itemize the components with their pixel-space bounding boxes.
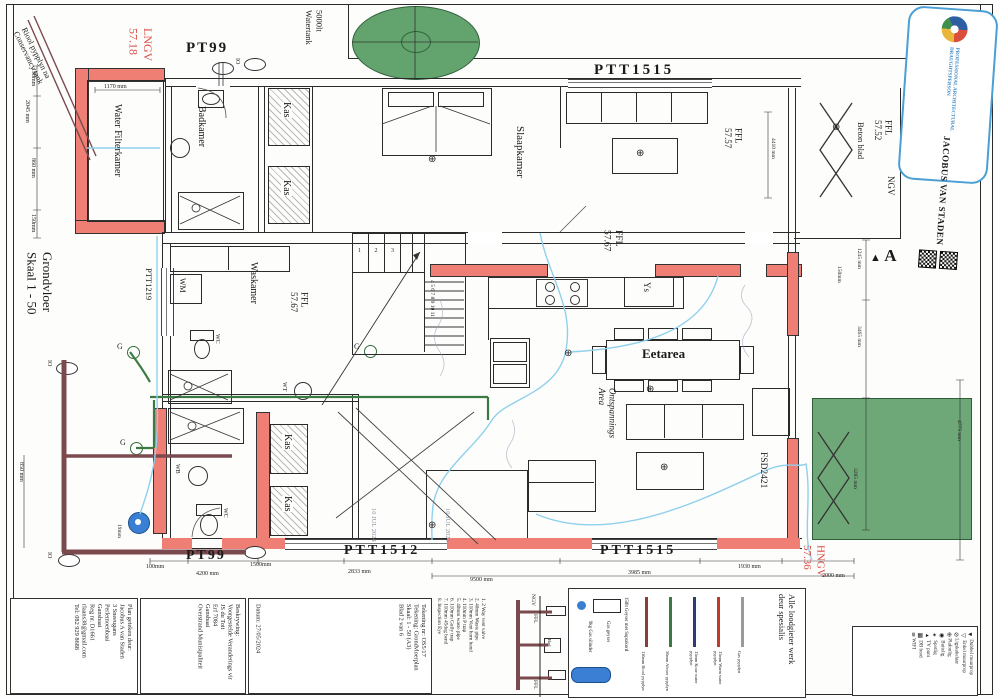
wall-red (153, 408, 167, 534)
elec-item: ◄ Dubbel muurprop (966, 632, 973, 675)
chair (740, 346, 754, 374)
detail-ffl: FFL (532, 614, 538, 623)
wall-red (717, 538, 800, 549)
chair (682, 328, 712, 340)
floor-plan-sheet: Riool pypplyn na Conservancy tank LNGV 5… (0, 0, 1000, 699)
section-letter: A (884, 246, 896, 265)
wall-line (488, 277, 489, 340)
sink-bowl (493, 364, 527, 384)
dim-right-5: 4775 mm (956, 420, 962, 441)
io-label: IO (46, 360, 52, 366)
legend-swatch-gas (741, 597, 744, 647)
io-label: IO (234, 58, 240, 64)
shower (178, 192, 244, 230)
ffl-code: FFL (299, 292, 310, 312)
side-table (636, 452, 704, 490)
fridge-label-ys: Ys (642, 282, 652, 292)
gully-label: G (120, 438, 126, 447)
elec-symbol-icon: ▦ (917, 632, 923, 639)
door-label-pt99-bottom: PT99 (186, 548, 226, 564)
dim-left-3: 860 mm (30, 158, 36, 178)
approval-date-stamp: 10 JUL 2024 (370, 508, 377, 542)
room-label-slaap: Slaapkamer (514, 126, 526, 178)
legend-label-riool: 110mm Riool pypplyn (641, 651, 646, 691)
ffl-code: FFL (611, 230, 622, 251)
waste-trough (294, 382, 312, 400)
detail-item: 3. 110mm Vent horn bend (467, 598, 473, 652)
gully-symbol (130, 442, 143, 455)
lounge-line2: Area (596, 388, 607, 438)
shower (168, 370, 232, 404)
elec-label: DB bord (918, 640, 923, 657)
ffl-code: FFL (883, 120, 894, 140)
tb-desc-line: Beskrywing: (233, 604, 241, 680)
detail-item: 6. 110mm Gully trap (448, 598, 454, 652)
room-label-wfk: Water Filterkamer (112, 104, 123, 177)
dim-bottom-4: 2833 mm (348, 569, 371, 575)
sofa-divider (671, 92, 672, 122)
qr-code-icon (939, 250, 958, 269)
tb-author-line: Reg nr. D1661 (88, 604, 96, 659)
light-symbol: ⊕ (428, 154, 436, 165)
dim-bottom-1: 100mm (146, 564, 164, 570)
tb-author-line: Jacobus A van Staden (118, 604, 126, 659)
legend-swatch-riool (645, 597, 648, 647)
elec-symbol-icon: ◉ (938, 632, 944, 639)
window-pane-line (568, 82, 712, 83)
sink-bowl (493, 342, 527, 362)
tb-author-line: Gansbaai (95, 604, 103, 659)
pillow (388, 92, 434, 107)
fixture-label-wm: WM (178, 278, 187, 293)
level-lngv: LNGV 57.18 (126, 28, 155, 61)
tb-draw-line: Tekening nr: OS5/17 (419, 604, 427, 671)
counter-divider (228, 246, 229, 270)
dim-right-2: 1245 mm (856, 248, 862, 269)
wall-red (655, 264, 741, 277)
burner-icon (570, 295, 580, 305)
detail-bad: Bad (547, 639, 552, 646)
titleblock-drawing: Tekening nr: OS5/17 Tekening: Grondvloer… (248, 598, 432, 694)
sewer-detail: 1. 2 Way vent valve 2. 40mm Waste pipe 3… (432, 592, 566, 698)
detail-item: 1. 2 Way vent valve (480, 598, 486, 652)
light-symbol: ⊕ (636, 148, 644, 159)
legend-swatch-warm (717, 597, 720, 647)
ffl-code: FFL (733, 128, 744, 148)
stair-numbers-low: 1 2 3 (358, 248, 400, 254)
lngv-code: LNGV (140, 28, 154, 61)
dim-left-5: 850 mm (18, 462, 24, 482)
elec-item: ⊘ Ligskakelaar (951, 632, 958, 675)
elec-item: ⊕ Plafonlig (944, 632, 951, 675)
fixture-label-wt: WT (281, 382, 287, 391)
elec-label: Plafonlig (946, 638, 951, 656)
legend-label-warm: 15mm Warm water pypplyn (713, 651, 723, 697)
tb-author-line: Plan geteken deur: (125, 604, 133, 659)
dim-right-1: 150mm (836, 266, 842, 283)
elec-symbol-icon: ≋ (910, 632, 916, 637)
tb-draw-line: Blad 2 van 6 (397, 604, 405, 671)
fixture-label-wc: WC (214, 334, 220, 344)
stove-hob (536, 279, 588, 307)
meter-size-label: 19mm (116, 524, 122, 538)
wall-line (352, 394, 353, 538)
tb-author-line: 3 Sneeugans (110, 604, 118, 659)
geyser-dot-icon (577, 601, 586, 610)
wall-red (75, 220, 165, 234)
basin-wb (188, 466, 208, 486)
plumb-title-line2: deur spesialis (777, 594, 787, 664)
stamp-logo-icon (941, 15, 969, 43)
dim-bottom-7: 1930 mm (738, 564, 761, 570)
room-label-lounge: Ontspannings Area (596, 388, 618, 438)
hngv-value: 57.36 (800, 545, 813, 577)
dim-right-3: 3465 mm (856, 326, 862, 347)
sofa (566, 92, 708, 124)
tb-desc-line: Erf 7084 (211, 604, 219, 680)
sofa-divider (664, 404, 665, 438)
toilet-bowl (194, 339, 210, 359)
elec-item: ◁ Enkel muurprop (959, 632, 966, 675)
tank-word: Watertank (304, 10, 314, 45)
boundary-line (348, 5, 349, 58)
note-beton-blad: Beton blad (856, 122, 866, 159)
room-wfk-outline (87, 80, 164, 222)
burner-icon (545, 295, 555, 305)
legend-label-afvoer: 50mm Afvoer pypplyn (665, 651, 670, 691)
elec-symbol-icon: ✶ (931, 632, 937, 639)
detail-ngv: NGV (530, 594, 536, 606)
coffee-table (612, 138, 678, 174)
wall-red (430, 264, 548, 277)
tb-author-line: Perlemoenbaai (103, 604, 111, 659)
detail-fixture (546, 606, 566, 616)
detail-item: 2. 40mm Waste pipe (473, 598, 479, 652)
triangle-icon: ▲ (870, 252, 881, 264)
titleblock-author: Plan geteken deur: Jacobus A van Staden … (10, 598, 138, 694)
dim-bottom-6: 3985 mm (628, 570, 651, 576)
window-label-ptt1515-top: PTT1515 (594, 62, 674, 79)
dim-left-2: 2045 mm (24, 100, 30, 123)
armchair (752, 388, 790, 436)
io-marker (58, 554, 80, 567)
closet-label-kas: Kas (282, 434, 293, 450)
light-symbol: ⊕ (646, 384, 654, 395)
chair (614, 380, 644, 392)
legend-label-koue: 15mm Koue water pypplyn (689, 651, 699, 697)
plumb-title-line1: Alle loodgieter werk (787, 594, 797, 664)
elec-symbol-icon: ◁ (960, 632, 966, 639)
tb-desc-line: Overstrand Munisipaliteit (196, 604, 204, 680)
tb-author-line: Tel: 082 929 8688 (73, 604, 81, 659)
window-ptt1515-top (568, 79, 712, 88)
elec-label: Ligskakelaar (954, 638, 959, 664)
titleblock-description: Beskrywing: Voorgestelde Veranderings vi… (140, 598, 246, 694)
stair-tread (400, 233, 401, 272)
closet-label-kas: Kas (281, 180, 292, 196)
plumbing-legend: Alle loodgieter werk deur spesialis Gas … (568, 588, 806, 698)
detail-ffl: FFL (532, 680, 538, 689)
elec-symbol-icon: ▸ (924, 632, 930, 639)
shower (168, 408, 244, 444)
sofa-divider (702, 404, 703, 438)
chair (682, 380, 712, 392)
door-gap (468, 231, 502, 245)
window-pane-line (166, 268, 167, 336)
hngv-code: HNGV (813, 545, 826, 577)
round-basin (170, 138, 190, 158)
elec-label: Enkel muurprop (961, 640, 966, 673)
dim-sitkamer: 4410 mm (770, 138, 776, 159)
io-marker (56, 362, 78, 375)
couch-line (528, 482, 594, 483)
wall-line (312, 86, 313, 232)
wall-red (256, 412, 270, 540)
chair (648, 328, 678, 340)
burner-icon (545, 282, 555, 292)
boundary-line (13, 4, 14, 694)
pillow (438, 92, 484, 107)
light-symbol: ⊕ (832, 122, 840, 133)
electrical-legend: ◄ Dubbel muurprop ◁ Enkel muurprop ⊘ Lig… (852, 626, 978, 696)
room-label-eet: Eetarea (642, 346, 685, 362)
light-symbol: ⊕ (428, 520, 436, 531)
io-label: IO (46, 552, 52, 558)
stair-divider (424, 233, 425, 352)
tb-draw-line: Tekening: Grondvloerplan (412, 604, 420, 671)
tank-capacity: 5000lt (314, 10, 324, 45)
water-tank-center (401, 31, 431, 53)
stair-numbers-high: 4 5 6 7 8 9 10 11 (429, 280, 435, 317)
legend-swatch-koue (693, 597, 696, 647)
dim-wfk: 1170 mm (104, 84, 127, 90)
wall-line (560, 86, 561, 148)
patio-slab (812, 398, 972, 540)
closet-label-kas: Kas (281, 102, 292, 118)
legend-label-gas: Gas pypplyn (737, 651, 742, 673)
elec-item: ✶ Spotlig (930, 632, 937, 675)
level-ffl-kitchen: FFL 57.67 (600, 230, 623, 251)
water-meter-dot (135, 519, 141, 525)
wall-line (264, 86, 265, 232)
gully-symbol (127, 346, 140, 359)
legend-gas-geyser: Gas geyser (605, 621, 610, 642)
water-tank-label: 5000lt Watertank (304, 10, 324, 45)
lounge-line1: Ontspannings (607, 388, 618, 438)
dim-left-4: 150mm (30, 214, 36, 232)
wall-red (787, 438, 799, 540)
tb-desc-line: JS du Toit (218, 604, 226, 680)
legend-cylinder: 9kg Gas silinder (587, 621, 592, 652)
door-gap (745, 231, 773, 245)
fixture-label-wb: WB (174, 464, 180, 474)
wall-line (258, 86, 259, 232)
ffl-value: 57.67 (288, 292, 299, 312)
window-label-ptt1512: PTT1512 (344, 543, 420, 559)
wall-line (165, 78, 166, 233)
elec-label: Buitelig (939, 640, 944, 656)
proposed-area (426, 470, 528, 540)
ffl-value: 57.52 (872, 120, 883, 140)
elec-symbol-icon: ⊘ (953, 632, 959, 637)
light-symbol: ⊕ (660, 462, 668, 473)
sofa-divider (636, 92, 637, 122)
section-marker-a: ▲ A (870, 246, 896, 266)
gully-label: G (354, 342, 360, 351)
chair (614, 328, 644, 340)
legend-geyser: 150lt Geyser met Suprakord (623, 597, 628, 651)
architect-stamp: PROFESSIONAL ARCHITECTURAL DRAUGHTSPERSO… (897, 5, 999, 185)
chair (592, 346, 606, 374)
level-ffl-sitkamer: FFL 57.57 (722, 128, 744, 148)
approval-date-stamp: 10 JUL 2024 (444, 508, 451, 542)
io-marker (244, 546, 266, 559)
gas-geyser-icon (593, 599, 621, 613)
elec-symbol-icon: ⊕ (945, 632, 951, 637)
tb-author-line: rlaans38@gmail.com (80, 604, 88, 659)
stair-tread (412, 233, 413, 272)
tb-desc-line: Gansbaai (203, 604, 211, 680)
level-ngv: NGV (886, 176, 896, 196)
stair-landing-line (352, 272, 424, 273)
sofa-divider (601, 92, 602, 122)
elec-label: Dubbel muurprop (968, 639, 973, 675)
wall-line (794, 238, 900, 239)
door-label-pt99-top: PT99 (186, 40, 228, 57)
door-gap-pt99 (196, 79, 230, 87)
window-label-ptt1515-bottom: PTT1515 (600, 543, 676, 559)
basin-bowl (202, 93, 220, 105)
elec-label: TV punt (925, 640, 930, 657)
qr-code-icon (918, 249, 937, 268)
toilet-bowl (200, 514, 218, 536)
io-marker (244, 58, 266, 71)
room-label-bad: Badkamer (196, 106, 207, 147)
burner-icon (570, 282, 580, 292)
elec-item: ≋ WIFI (908, 632, 915, 675)
level-hngv: HNGV 57.36 (800, 545, 826, 577)
fixture-label-wc: WC (222, 508, 228, 518)
elec-label: WIFI (911, 638, 916, 649)
elec-label: Spotlig (932, 640, 937, 654)
tb-desc-line: Voorgestelde Veranderings vir (226, 604, 234, 680)
light-symbol: ⊕ (564, 348, 572, 359)
elec-symbol-icon: ◄ (967, 632, 973, 638)
door-label-fsd2421: FSD2421 (758, 452, 768, 488)
detail-item: 5. 40mm waste pipe (455, 598, 461, 652)
wall-red (787, 252, 799, 336)
lngv-value: 57.18 (126, 28, 140, 61)
title-floor: Grondvloer (40, 252, 56, 314)
title-scale: Skaal 1 - 50 (24, 252, 40, 314)
level-ffl-stoep: FFL 57.52 (872, 120, 894, 140)
dim-bottom-2: 4200 mm (196, 571, 219, 577)
sofa (626, 404, 744, 440)
couch (528, 460, 596, 512)
level-ffl-waskamer: FFL 57.67 (288, 292, 310, 312)
counter (170, 246, 290, 272)
io-marker (212, 62, 234, 75)
dim-right-4: 3285 mm (852, 468, 858, 489)
window-label-ptt1219: PTT1219 (144, 268, 154, 300)
dim-left-1: 190mm (30, 68, 36, 86)
tb-datum: Datum: 27/05/2024 (254, 604, 262, 653)
gas-cylinder-icon (571, 667, 611, 683)
gully-label: G (117, 342, 123, 351)
wall-line (358, 394, 359, 538)
wall-red (447, 538, 592, 549)
room-label-was: Waskamer (248, 262, 259, 304)
elec-item: ◉ Buitelig (937, 632, 944, 675)
detail-fixture (548, 670, 566, 680)
drawing-title: Grondvloer Skaal 1 - 50 (24, 252, 55, 314)
dim-bottom-3: 1500mm (250, 562, 271, 568)
ffl-value: 57.57 (722, 128, 733, 148)
legend-swatch-afvoer (669, 597, 672, 647)
dim-bottom-5: 9500 mm (470, 577, 493, 583)
elec-item: ▦ DB bord (916, 632, 923, 675)
closet-label-kas: Kas (282, 496, 293, 512)
elec-item: ▸ TV punt (923, 632, 930, 675)
detail-item: 7. 110mm 45deg bend (442, 598, 448, 652)
ffl-value: 57.67 (600, 230, 611, 251)
wall-line (171, 86, 172, 233)
tb-draw-line: Skaal: 1 - 50 (A3) (404, 604, 412, 671)
